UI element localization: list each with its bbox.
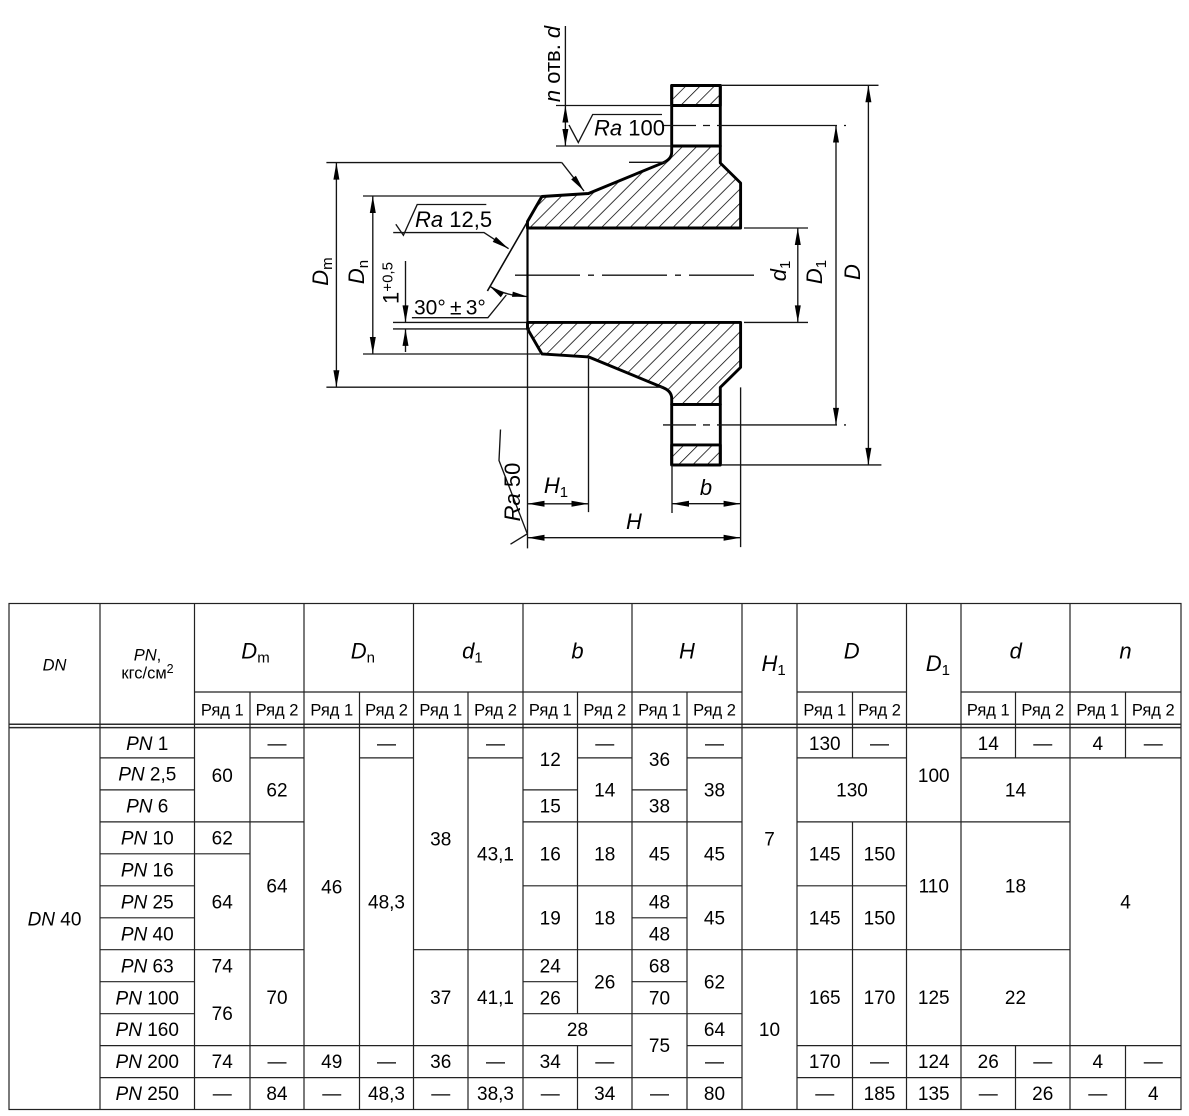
svg-text:PN 250: PN 250 bbox=[116, 1084, 179, 1105]
svg-text:—: — bbox=[815, 1084, 834, 1105]
svg-text:34: 34 bbox=[540, 1052, 562, 1073]
svg-text:68: 68 bbox=[649, 956, 670, 977]
svg-text:130: 130 bbox=[809, 734, 841, 755]
svg-text:19: 19 bbox=[540, 908, 561, 929]
svg-text:37: 37 bbox=[430, 988, 451, 1009]
svg-text:PN 160: PN 160 bbox=[116, 1020, 179, 1041]
svg-text:36: 36 bbox=[430, 1052, 451, 1073]
svg-text:15: 15 bbox=[540, 797, 561, 818]
svg-text:—: — bbox=[541, 1084, 560, 1105]
svg-text:—: — bbox=[431, 1084, 450, 1105]
svg-text:130: 130 bbox=[836, 781, 868, 802]
svg-text:—: — bbox=[377, 734, 396, 755]
svg-text:14: 14 bbox=[978, 734, 1000, 755]
svg-text:PN 6: PN 6 bbox=[126, 797, 168, 818]
svg-text:—: — bbox=[1033, 1052, 1052, 1073]
svg-text:38: 38 bbox=[430, 830, 451, 851]
svg-text:74: 74 bbox=[212, 956, 234, 977]
svg-text:—: — bbox=[705, 734, 724, 755]
svg-text:60: 60 bbox=[212, 766, 233, 787]
svg-text:18: 18 bbox=[594, 908, 615, 929]
svg-text:—: — bbox=[870, 734, 889, 755]
svg-text:Ряд 2: Ряд 2 bbox=[858, 702, 901, 720]
svg-text:4: 4 bbox=[1092, 1052, 1103, 1073]
svg-text:Ra 100: Ra 100 bbox=[594, 116, 665, 141]
svg-text:74: 74 bbox=[212, 1052, 234, 1073]
svg-text:62: 62 bbox=[212, 829, 233, 850]
svg-text:75: 75 bbox=[649, 1036, 670, 1057]
svg-text:70: 70 bbox=[649, 988, 670, 1009]
svg-text:4: 4 bbox=[1148, 1084, 1159, 1105]
svg-text:150: 150 bbox=[864, 908, 896, 929]
svg-text:—: — bbox=[213, 1084, 232, 1105]
svg-text:—: — bbox=[486, 734, 505, 755]
svg-text:PN,: PN, bbox=[134, 647, 162, 665]
svg-text:d: d bbox=[1010, 639, 1023, 664]
svg-text:84: 84 bbox=[266, 1084, 288, 1105]
svg-text:26: 26 bbox=[1032, 1084, 1053, 1105]
svg-text:45: 45 bbox=[704, 845, 725, 866]
svg-text:PN 200: PN 200 bbox=[116, 1052, 179, 1073]
svg-text:—: — bbox=[1144, 1052, 1163, 1073]
svg-text:62: 62 bbox=[704, 972, 725, 993]
svg-text:48,3: 48,3 bbox=[368, 892, 405, 913]
svg-text:Ra 50: Ra 50 bbox=[500, 463, 525, 522]
svg-text:48: 48 bbox=[649, 892, 670, 913]
svg-text:18: 18 bbox=[594, 845, 615, 866]
svg-text:64: 64 bbox=[266, 876, 288, 897]
svg-text:кгс/см2: кгс/см2 bbox=[121, 662, 173, 683]
svg-text:Ряд 2: Ряд 2 bbox=[1132, 702, 1175, 720]
svg-text:185: 185 bbox=[864, 1084, 896, 1105]
svg-text:165: 165 bbox=[809, 988, 841, 1009]
svg-text:—: — bbox=[595, 734, 614, 755]
svg-text:38: 38 bbox=[649, 797, 670, 818]
svg-text:H: H bbox=[679, 639, 695, 664]
svg-text:70: 70 bbox=[266, 988, 287, 1009]
svg-text:Ряд 1: Ряд 1 bbox=[1076, 702, 1119, 720]
svg-text:—: — bbox=[1088, 1084, 1107, 1105]
svg-text:80: 80 bbox=[704, 1084, 725, 1105]
svg-text:Ряд 2: Ряд 2 bbox=[256, 702, 299, 720]
svg-text:PN 2,5: PN 2,5 bbox=[118, 765, 176, 786]
svg-text:4: 4 bbox=[1092, 734, 1103, 755]
svg-text:Ряд 1: Ряд 1 bbox=[201, 702, 244, 720]
svg-text:—: — bbox=[1033, 734, 1052, 755]
svg-text:24: 24 bbox=[540, 956, 562, 977]
svg-text:Ряд 2: Ряд 2 bbox=[474, 702, 517, 720]
svg-text:49: 49 bbox=[321, 1052, 342, 1073]
svg-text:45: 45 bbox=[704, 908, 725, 929]
svg-text:Ряд 2: Ряд 2 bbox=[365, 702, 408, 720]
svg-text:14: 14 bbox=[594, 781, 616, 802]
svg-text:145: 145 bbox=[809, 908, 841, 929]
svg-text:7: 7 bbox=[764, 830, 775, 851]
svg-text:b: b bbox=[700, 475, 712, 500]
svg-text:—: — bbox=[705, 1052, 724, 1073]
svg-text:Ряд 1: Ряд 1 bbox=[310, 702, 353, 720]
svg-text:76: 76 bbox=[212, 1004, 233, 1025]
svg-text:PN 10: PN 10 bbox=[121, 828, 174, 849]
svg-text:—: — bbox=[268, 1052, 287, 1073]
svg-text:—: — bbox=[870, 1052, 889, 1073]
svg-text:46: 46 bbox=[321, 878, 342, 899]
svg-text:22: 22 bbox=[1005, 988, 1026, 1009]
svg-text:—: — bbox=[377, 1052, 396, 1073]
svg-text:n: n bbox=[1119, 639, 1131, 664]
svg-text:28: 28 bbox=[567, 1020, 588, 1041]
svg-text:34: 34 bbox=[594, 1084, 616, 1105]
svg-text:—: — bbox=[486, 1052, 505, 1073]
svg-text:—: — bbox=[322, 1084, 341, 1105]
svg-text:n отв. d: n отв. d bbox=[540, 25, 565, 102]
svg-text:170: 170 bbox=[864, 988, 896, 1009]
svg-text:45: 45 bbox=[649, 845, 670, 866]
svg-text:Ряд 2: Ряд 2 bbox=[583, 702, 626, 720]
svg-text:4: 4 bbox=[1120, 892, 1131, 913]
svg-text:—: — bbox=[979, 1084, 998, 1105]
svg-text:64: 64 bbox=[212, 892, 234, 913]
svg-text:PN 40: PN 40 bbox=[121, 924, 174, 945]
svg-text:D: D bbox=[844, 639, 860, 664]
svg-text:30° ± 3°: 30° ± 3° bbox=[414, 297, 486, 320]
svg-text:12: 12 bbox=[540, 750, 561, 771]
svg-text:PN 63: PN 63 bbox=[121, 956, 174, 977]
svg-text:Ряд 1: Ряд 1 bbox=[638, 702, 681, 720]
svg-text:—: — bbox=[268, 734, 287, 755]
svg-text:64: 64 bbox=[704, 1020, 726, 1041]
svg-text:Ряд 2: Ряд 2 bbox=[693, 702, 736, 720]
svg-text:—: — bbox=[650, 1084, 669, 1105]
svg-text:16: 16 bbox=[540, 845, 561, 866]
svg-text:38,3: 38,3 bbox=[477, 1084, 514, 1105]
svg-text:38: 38 bbox=[704, 781, 725, 802]
svg-text:Ряд 1: Ряд 1 bbox=[419, 702, 462, 720]
svg-text:Ряд 1: Ряд 1 bbox=[967, 702, 1010, 720]
svg-text:—: — bbox=[595, 1052, 614, 1073]
svg-text:PN 100: PN 100 bbox=[116, 988, 179, 1009]
svg-text:—: — bbox=[1144, 734, 1163, 755]
svg-text:26: 26 bbox=[594, 972, 615, 993]
svg-text:26: 26 bbox=[540, 988, 561, 1009]
svg-text:Ra 12,5: Ra 12,5 bbox=[415, 207, 492, 232]
svg-text:DN: DN bbox=[43, 657, 67, 675]
svg-text:10: 10 bbox=[759, 1020, 780, 1041]
svg-text:135: 135 bbox=[918, 1084, 950, 1105]
svg-text:124: 124 bbox=[918, 1052, 950, 1073]
svg-text:DN 40: DN 40 bbox=[28, 910, 82, 931]
svg-text:48: 48 bbox=[649, 924, 670, 945]
svg-text:18: 18 bbox=[1005, 876, 1026, 897]
svg-text:41,1: 41,1 bbox=[477, 988, 514, 1009]
svg-text:14: 14 bbox=[1005, 781, 1027, 802]
svg-text:150: 150 bbox=[864, 845, 896, 866]
svg-text:100: 100 bbox=[918, 766, 950, 787]
svg-text:36: 36 bbox=[649, 750, 670, 771]
svg-text:H: H bbox=[626, 509, 642, 534]
svg-text:43,1: 43,1 bbox=[477, 844, 514, 865]
svg-text:PN 25: PN 25 bbox=[121, 892, 174, 913]
svg-text:48,3: 48,3 bbox=[368, 1084, 405, 1105]
svg-text:D: D bbox=[840, 264, 865, 280]
svg-text:Ряд 1: Ряд 1 bbox=[803, 702, 846, 720]
svg-text:170: 170 bbox=[809, 1052, 841, 1073]
svg-text:Ряд 1: Ряд 1 bbox=[529, 702, 572, 720]
svg-text:PN 16: PN 16 bbox=[121, 860, 174, 881]
svg-text:PN 1: PN 1 bbox=[126, 734, 168, 755]
svg-text:62: 62 bbox=[266, 781, 287, 802]
svg-text:Ряд 2: Ряд 2 bbox=[1021, 702, 1064, 720]
svg-text:145: 145 bbox=[809, 845, 841, 866]
svg-text:125: 125 bbox=[918, 988, 950, 1009]
svg-text:26: 26 bbox=[978, 1052, 999, 1073]
svg-text:110: 110 bbox=[919, 876, 949, 897]
svg-text:b: b bbox=[571, 639, 583, 664]
